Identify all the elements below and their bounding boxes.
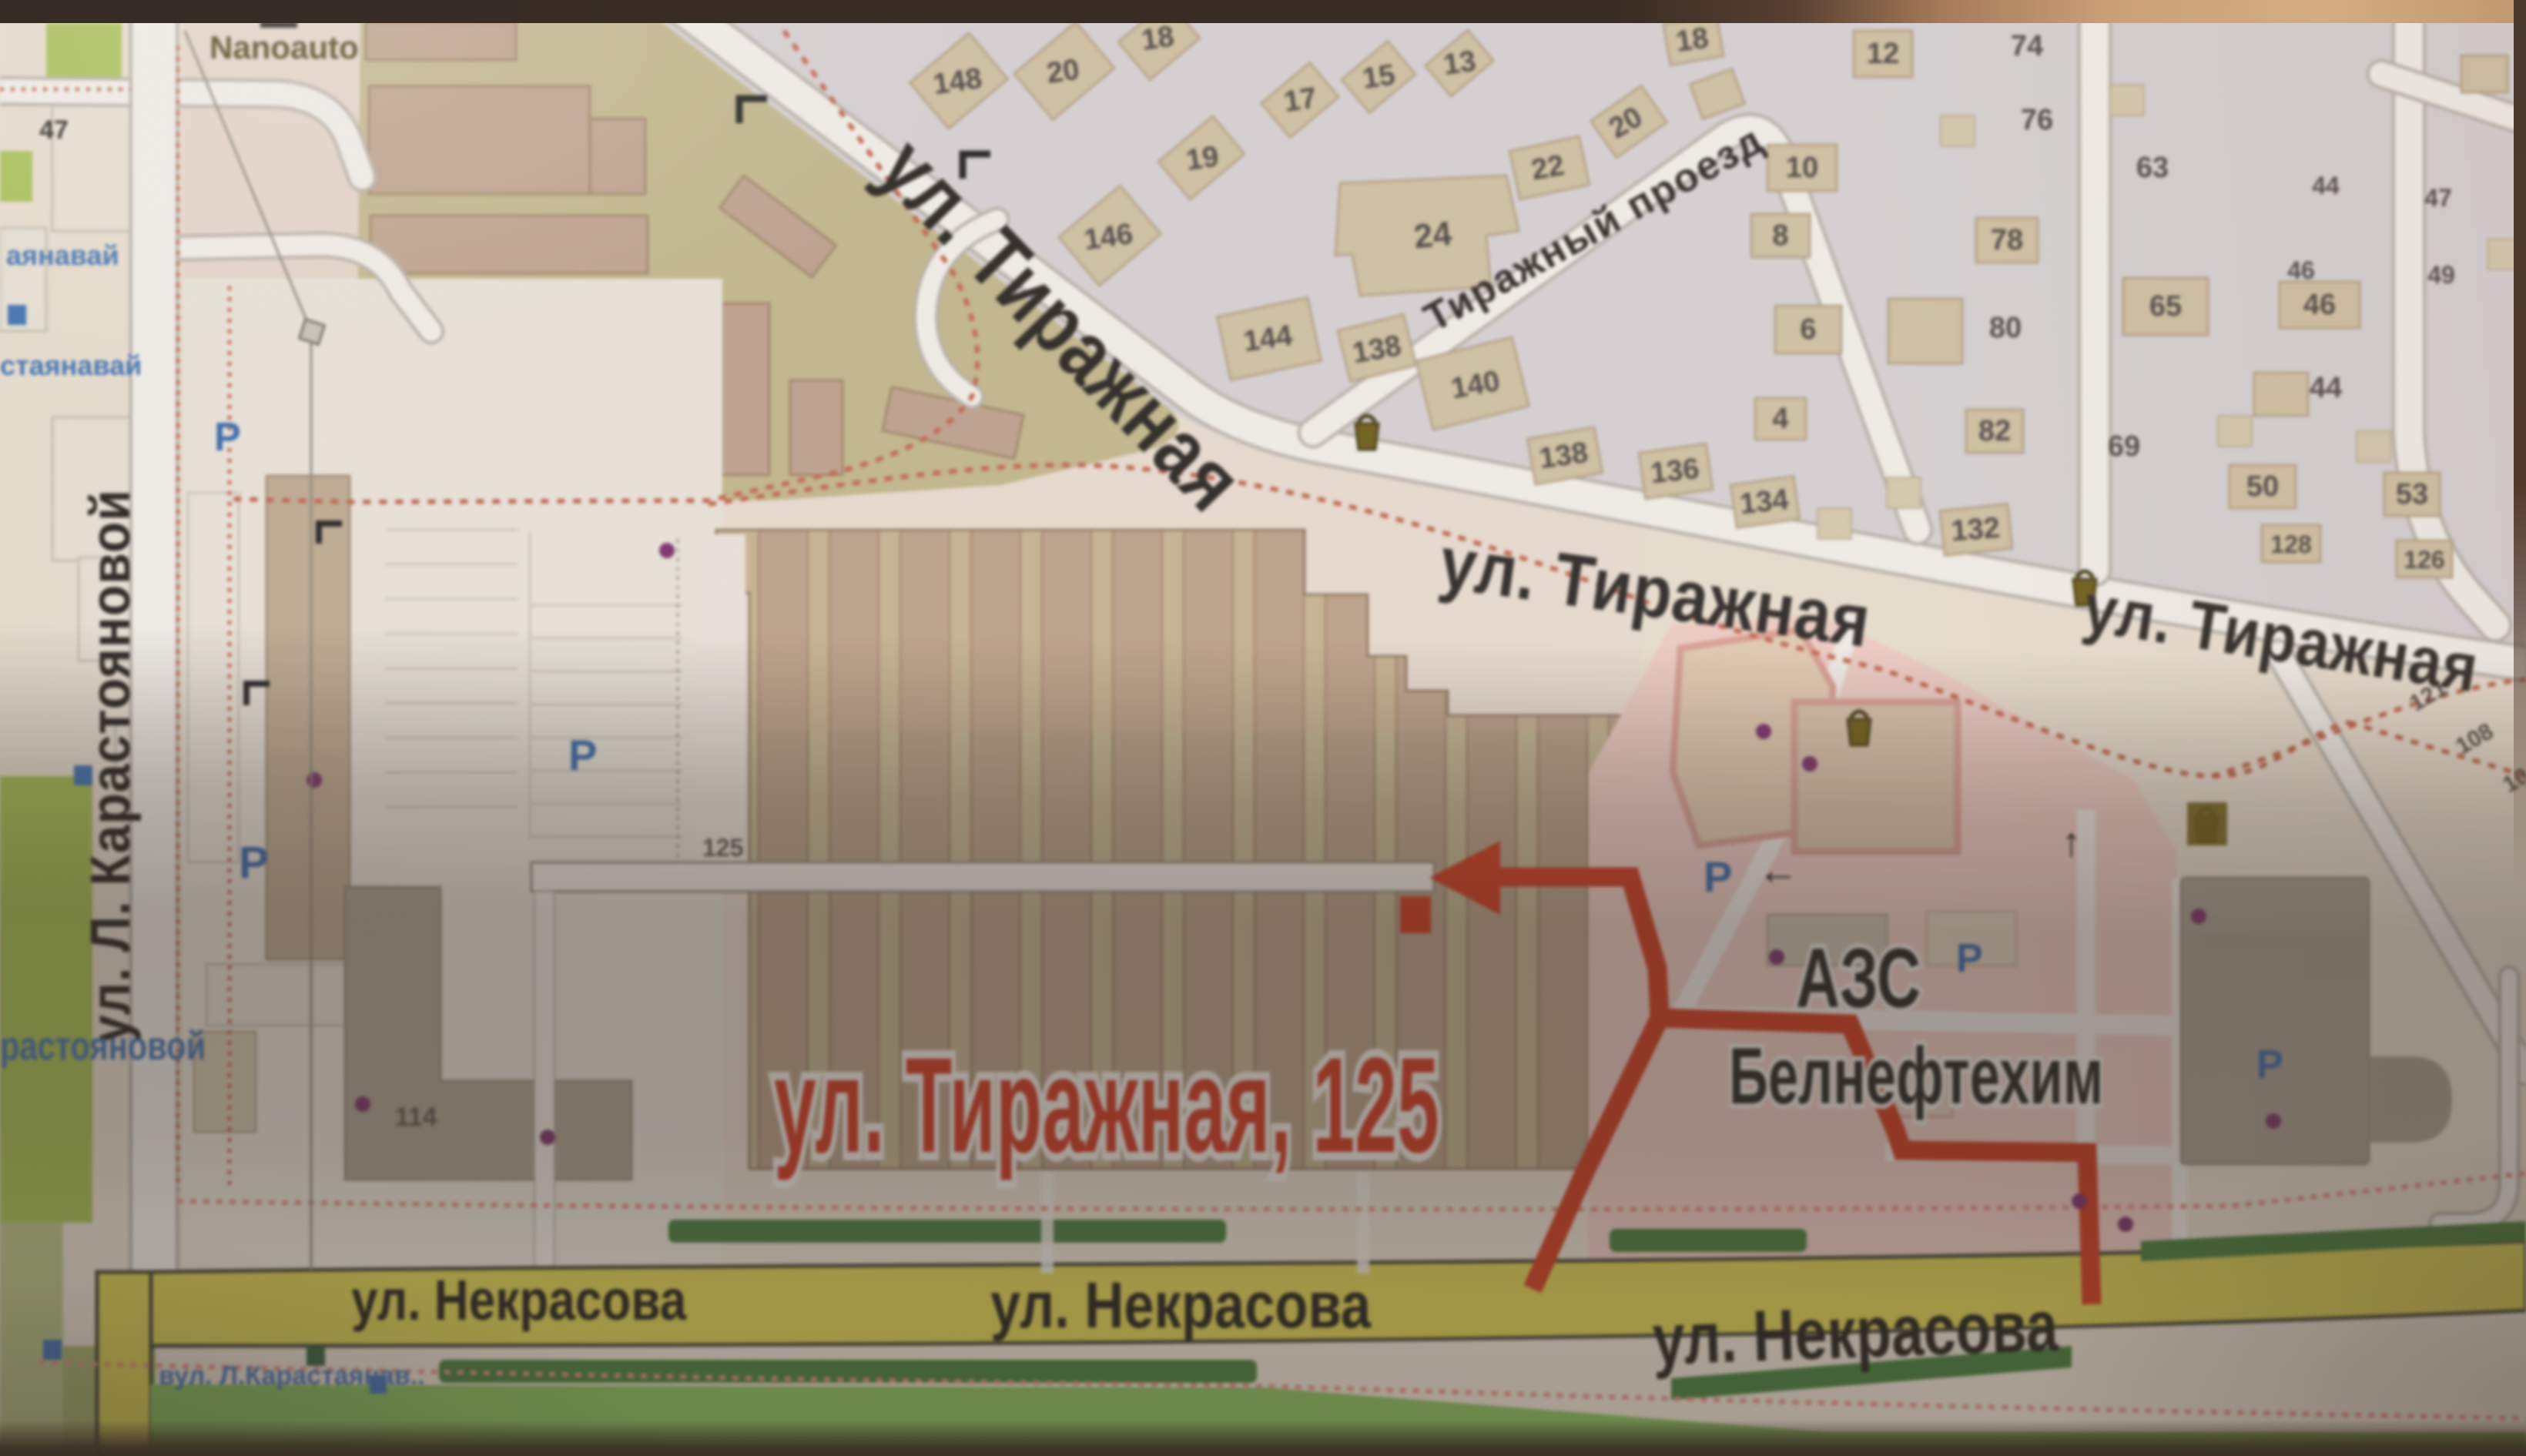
svg-text:74: 74 [2011,30,2043,62]
svg-text:44: 44 [2312,172,2340,199]
svg-text:18: 18 [1673,22,1710,58]
svg-text:50: 50 [2246,470,2279,503]
svg-text:47: 47 [39,115,69,145]
svg-text:ул. Некрасова: ул. Некрасова [351,1269,687,1332]
svg-text:аянавай: аянавай [6,239,119,271]
svg-text:15: 15 [1360,59,1397,95]
svg-text:44: 44 [2310,372,2342,404]
svg-text:P: P [214,415,241,460]
svg-text:ул. Некрасова: ул. Некрасова [990,1270,1372,1341]
svg-text:8: 8 [1772,219,1788,252]
svg-text:128: 128 [2270,531,2311,558]
svg-text:125: 125 [702,834,743,862]
svg-text:12: 12 [1867,38,1899,70]
svg-text:растояновой: растояновой [0,1023,206,1069]
svg-text:49: 49 [2427,261,2455,289]
svg-text:22: 22 [1529,149,1566,187]
svg-text:134: 134 [1738,484,1790,520]
svg-text:138: 138 [1537,437,1590,475]
svg-text:63: 63 [2136,152,2169,184]
svg-text:53: 53 [2396,478,2428,510]
svg-text:←: ← [1757,847,1799,893]
svg-text:144: 144 [1241,320,1295,358]
svg-text:69: 69 [2108,430,2140,463]
svg-text:78: 78 [1991,224,2023,256]
svg-text:ул. Л. Карастояновой: ул. Л. Карастояновой [79,489,141,1043]
svg-text:76: 76 [2021,104,2053,136]
svg-text:6: 6 [1800,313,1816,346]
svg-text:вул. Л.Карастаянав..: вул. Л.Карастаянав.. [159,1361,425,1391]
svg-text:46: 46 [2287,256,2315,284]
svg-text:P: P [239,838,269,888]
svg-text:80: 80 [1989,312,2022,344]
svg-text:146: 146 [1082,218,1135,256]
svg-text:132: 132 [1950,512,2001,547]
svg-text:136: 136 [1649,453,1700,490]
svg-text:65: 65 [2149,290,2182,323]
svg-text:10: 10 [1786,152,1818,184]
svg-text:P: P [568,731,597,779]
svg-text:148: 148 [931,62,984,101]
svg-text:82: 82 [1978,415,2011,447]
svg-text:114: 114 [395,1103,437,1132]
svg-text:46: 46 [2303,289,2336,321]
svg-text:ул. Тиражная, 125: ул. Тиражная, 125 [774,1030,1439,1181]
svg-text:47: 47 [2424,184,2452,212]
svg-text:стаянавай: стаянавай [0,350,142,381]
svg-text:Nanoauto: Nanoauto [209,29,359,65]
svg-text:P: P [1704,852,1732,901]
svg-text:Белнефтехим: Белнефтехим [1729,1030,2103,1120]
svg-text:17: 17 [1281,82,1318,118]
svg-text:126: 126 [2404,546,2444,574]
svg-text:20: 20 [1044,53,1081,89]
svg-text:ул. Некрасова: ул. Некрасова [1651,1286,2060,1381]
svg-text:19: 19 [1184,140,1221,176]
svg-text:4: 4 [1772,403,1788,435]
svg-text:P: P [1956,936,1983,981]
svg-text:P: P [2256,1043,2283,1087]
svg-text:18: 18 [1139,20,1176,56]
svg-text:↑: ↑ [2061,819,2082,865]
svg-text:АЗС: АЗС [1796,931,1921,1026]
svg-text:24: 24 [1412,215,1454,256]
svg-text:13: 13 [1441,45,1478,81]
